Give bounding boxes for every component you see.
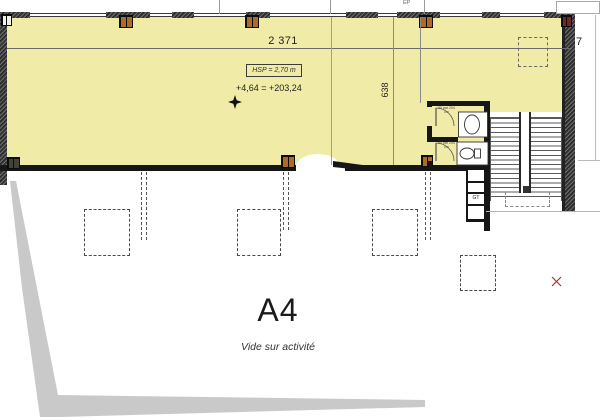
sink-icon — [465, 115, 480, 134]
survey-cross-icon — [552, 277, 561, 286]
toilet-icon — [460, 148, 474, 159]
void-edge-chamfer — [333, 161, 370, 171]
toilet-tank — [475, 149, 481, 158]
door-swing-arc — [436, 108, 454, 126]
floor-plan-canvas: 2 371 7 638 HSP = 2,70 m +4,64 = +203,24… — [0, 0, 600, 420]
level-marker-star-icon — [228, 95, 242, 109]
detail-overlay — [0, 0, 600, 420]
door-swing-arc — [436, 143, 454, 161]
